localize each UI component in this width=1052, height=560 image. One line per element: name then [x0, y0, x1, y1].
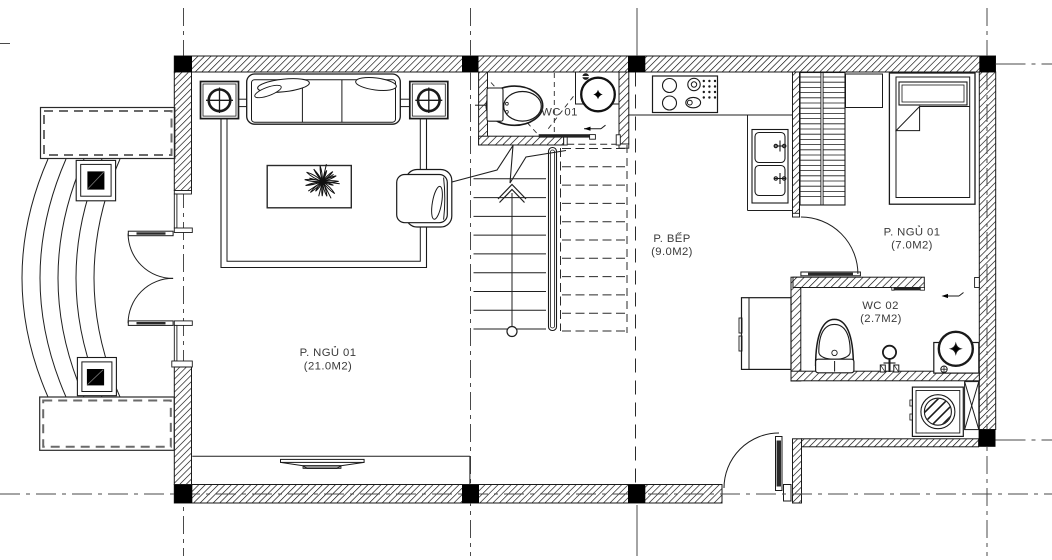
svg-text:WC 01: WC 01	[541, 107, 578, 119]
svg-text:WC 02: WC 02	[862, 300, 899, 312]
svg-text:P. NGỦ 01: P. NGỦ 01	[300, 346, 357, 359]
svg-text:P. BẾP: P. BẾP	[653, 232, 690, 245]
svg-text:(9.0M2): (9.0M2)	[651, 246, 693, 258]
svg-text:(21.0M2): (21.0M2)	[304, 361, 352, 373]
svg-text:(7.0M2): (7.0M2)	[891, 240, 933, 252]
svg-text:P. NGỦ 01: P. NGỦ 01	[884, 226, 941, 239]
svg-text:(2.7M2): (2.7M2)	[860, 313, 902, 325]
